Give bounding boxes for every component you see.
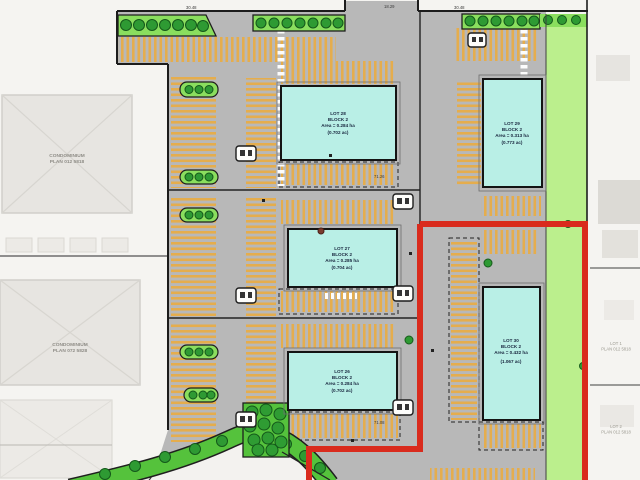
lot-number: LOT 27 bbox=[334, 246, 350, 251]
tree-cluster bbox=[243, 403, 289, 457]
adjacent-structure bbox=[598, 180, 640, 224]
block-number: BLOCK 2 bbox=[332, 252, 353, 257]
tree-icon bbox=[484, 259, 492, 267]
parking-stall-row bbox=[430, 468, 535, 480]
parking-stall-column bbox=[457, 80, 481, 186]
block-number: BLOCK 2 bbox=[328, 117, 349, 122]
area-ha: Area = 0.284 ha bbox=[325, 381, 359, 386]
landscape-island bbox=[180, 170, 218, 184]
landscape-island bbox=[180, 82, 218, 97]
utility-pad bbox=[393, 286, 413, 301]
adjacent-structure bbox=[604, 300, 634, 320]
utility-pad bbox=[236, 412, 256, 427]
lot-number: LOT 29 bbox=[504, 121, 520, 126]
lot-number: LOT 26 bbox=[334, 369, 350, 374]
landscape-island bbox=[184, 388, 218, 402]
utility-pad bbox=[236, 146, 256, 161]
area-ha: Area = 0.313 ha bbox=[495, 133, 529, 138]
lot-number: LOT 28 bbox=[330, 111, 346, 116]
parking-stall-row bbox=[281, 200, 396, 224]
dimension-text: 18.29 bbox=[384, 4, 395, 9]
area-ac: (0.773 ac) bbox=[502, 140, 523, 145]
lot-number: LOT 30 bbox=[503, 338, 519, 343]
dimension-text: 30.48 bbox=[186, 5, 197, 10]
parking-stall-column bbox=[246, 78, 276, 188]
area-ha: Area = 0.432 ha bbox=[494, 350, 528, 355]
svg-text:LOT 1: LOT 1 bbox=[610, 341, 622, 346]
utility-pad bbox=[393, 400, 413, 415]
top-hedge-4-trees bbox=[544, 16, 581, 25]
dimension-text: 30.48 bbox=[454, 5, 465, 10]
svg-text:PLAN 072 5828: PLAN 072 5828 bbox=[53, 348, 88, 354]
svg-text:CONDOMINIUM: CONDOMINIUM bbox=[52, 342, 87, 348]
site-plan-canvas: LOT 28 BLOCK 2 Area = 0.284 ha (0.702 ac… bbox=[0, 0, 640, 480]
tree-icon bbox=[318, 228, 324, 234]
svg-text:CONDOMINIUM: CONDOMINIUM bbox=[49, 153, 84, 159]
parking-stall-row bbox=[281, 61, 396, 84]
svg-text:PLAN 012 5818: PLAN 012 5818 bbox=[50, 159, 85, 165]
parking-stall-row bbox=[281, 324, 396, 348]
landscape-island bbox=[180, 345, 218, 359]
parking-stall-column bbox=[171, 324, 216, 442]
dimension-text: 71.08 bbox=[374, 420, 385, 425]
site-plan-drawing: LOT 28 BLOCK 2 Area = 0.284 ha (0.702 ac… bbox=[0, 0, 640, 480]
utility-pad bbox=[236, 288, 256, 303]
svg-text:LOT 2: LOT 2 bbox=[610, 424, 622, 429]
tree-icon bbox=[405, 336, 413, 344]
area-ha: Area = 0.284 ha bbox=[321, 123, 355, 128]
block-number: BLOCK 2 bbox=[502, 127, 523, 132]
parking-stall-row bbox=[481, 196, 541, 216]
utility-pad bbox=[393, 194, 413, 209]
area-ac: (1.067 ac) bbox=[501, 359, 522, 364]
utility-pad bbox=[468, 33, 486, 47]
top-hedge-3 bbox=[462, 14, 540, 29]
landscape-island bbox=[180, 208, 218, 222]
green-buffer-strip bbox=[546, 14, 587, 480]
adjacent-structure bbox=[596, 55, 630, 81]
parking-stall-row bbox=[290, 414, 398, 438]
top-hedge-2 bbox=[253, 15, 345, 31]
parking-stall-row bbox=[118, 37, 336, 62]
svg-text:PLAN 012 5818: PLAN 012 5818 bbox=[601, 430, 631, 435]
dimension-text: 71.26 bbox=[374, 174, 385, 179]
parking-stall-row bbox=[481, 424, 541, 448]
area-ac: (0.702 ac) bbox=[332, 388, 353, 393]
block-number: BLOCK 2 bbox=[501, 344, 522, 349]
parking-stall-column bbox=[451, 240, 477, 420]
area-ha: Area = 0.285 ha bbox=[325, 258, 359, 263]
adjacent-structure bbox=[602, 230, 638, 258]
svg-text:PLAN 012 5818: PLAN 012 5818 bbox=[601, 347, 631, 352]
block-number: BLOCK 2 bbox=[332, 375, 353, 380]
area-ac: (0.702 ac) bbox=[328, 130, 349, 135]
top-hedge-1 bbox=[118, 15, 216, 36]
parking-stall-row bbox=[481, 230, 539, 254]
area-ac: (0.704 ac) bbox=[332, 265, 353, 270]
